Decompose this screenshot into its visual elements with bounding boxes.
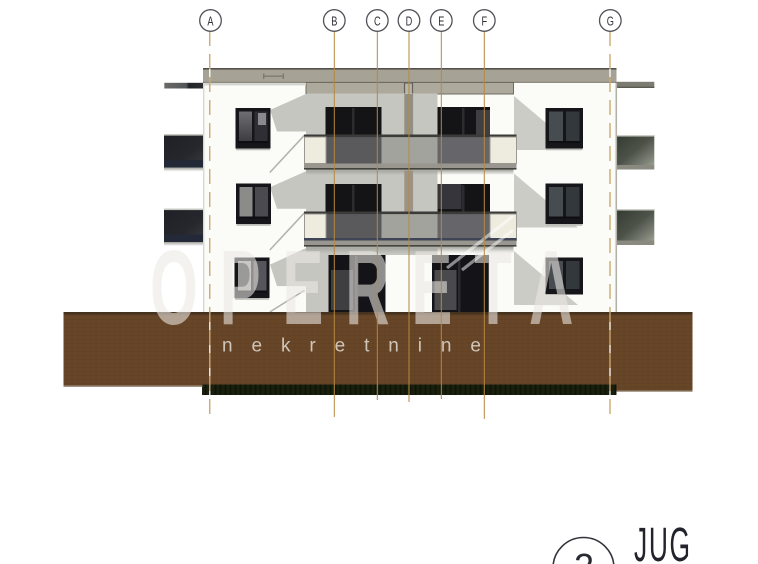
svg-text:2: 2 <box>574 546 594 564</box>
svg-text:A: A <box>207 15 214 29</box>
svg-text:E: E <box>438 15 444 29</box>
svg-text:nekretnine: nekretnine <box>222 336 498 357</box>
svg-text:JUG: JUG <box>634 519 692 564</box>
svg-text:F: F <box>481 15 487 29</box>
svg-text:D: D <box>406 15 413 29</box>
svg-text:B: B <box>331 15 337 29</box>
svg-text:C: C <box>374 15 381 29</box>
svg-text:G: G <box>607 15 614 29</box>
